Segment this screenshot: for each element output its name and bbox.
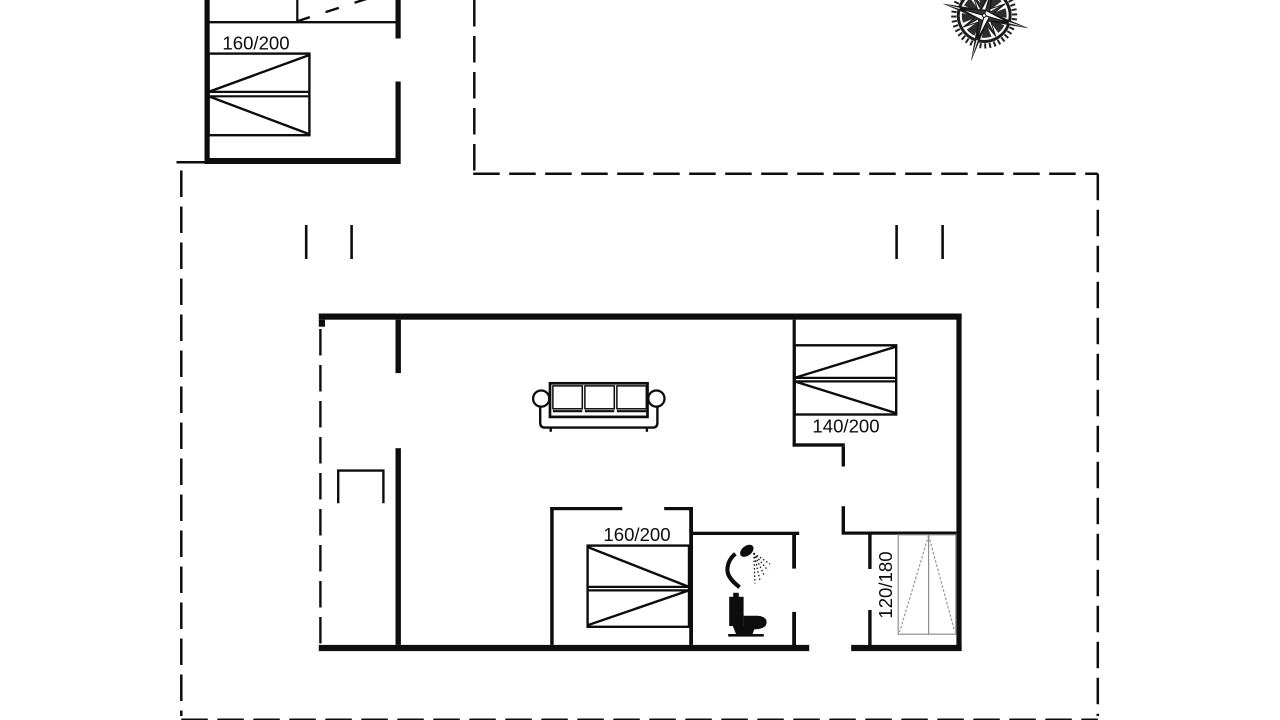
svg-text:140/200: 140/200: [812, 416, 879, 437]
svg-text:120/180: 120/180: [875, 551, 896, 618]
svg-text:160/200: 160/200: [222, 33, 289, 54]
svg-text:160/200: 160/200: [603, 524, 670, 545]
